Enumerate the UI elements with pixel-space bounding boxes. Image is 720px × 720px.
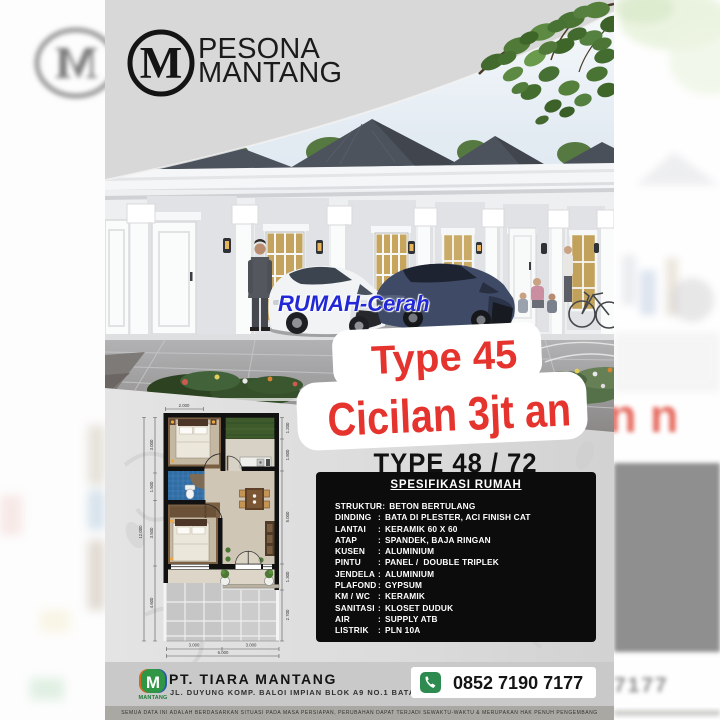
svg-text:M: M <box>140 38 182 88</box>
svg-text:n n: n n <box>614 389 678 442</box>
svg-text:1.800: 1.800 <box>285 449 290 460</box>
svg-text:2.000: 2.000 <box>179 403 190 408</box>
svg-text:7177: 7177 <box>614 674 669 697</box>
svg-text:6.000: 6.000 <box>218 650 229 655</box>
svg-text:4.600: 4.600 <box>149 597 154 608</box>
svg-text:M: M <box>146 673 160 692</box>
svg-text:5.000: 5.000 <box>285 511 290 522</box>
svg-text:1.300: 1.300 <box>285 571 290 582</box>
svg-text:3.000: 3.000 <box>149 439 154 450</box>
svg-text:3.500: 3.500 <box>149 527 154 538</box>
svg-text:M: M <box>54 37 97 88</box>
svg-text:MANTANG: MANTANG <box>138 695 167 701</box>
svg-text:2.700: 2.700 <box>285 609 290 620</box>
svg-text:1.200: 1.200 <box>285 422 290 433</box>
svg-text:1.500: 1.500 <box>149 481 154 492</box>
svg-text:3.000: 3.000 <box>246 643 257 648</box>
svg-text:3.000: 3.000 <box>189 643 200 648</box>
svg-text:12.000: 12.000 <box>138 525 143 539</box>
